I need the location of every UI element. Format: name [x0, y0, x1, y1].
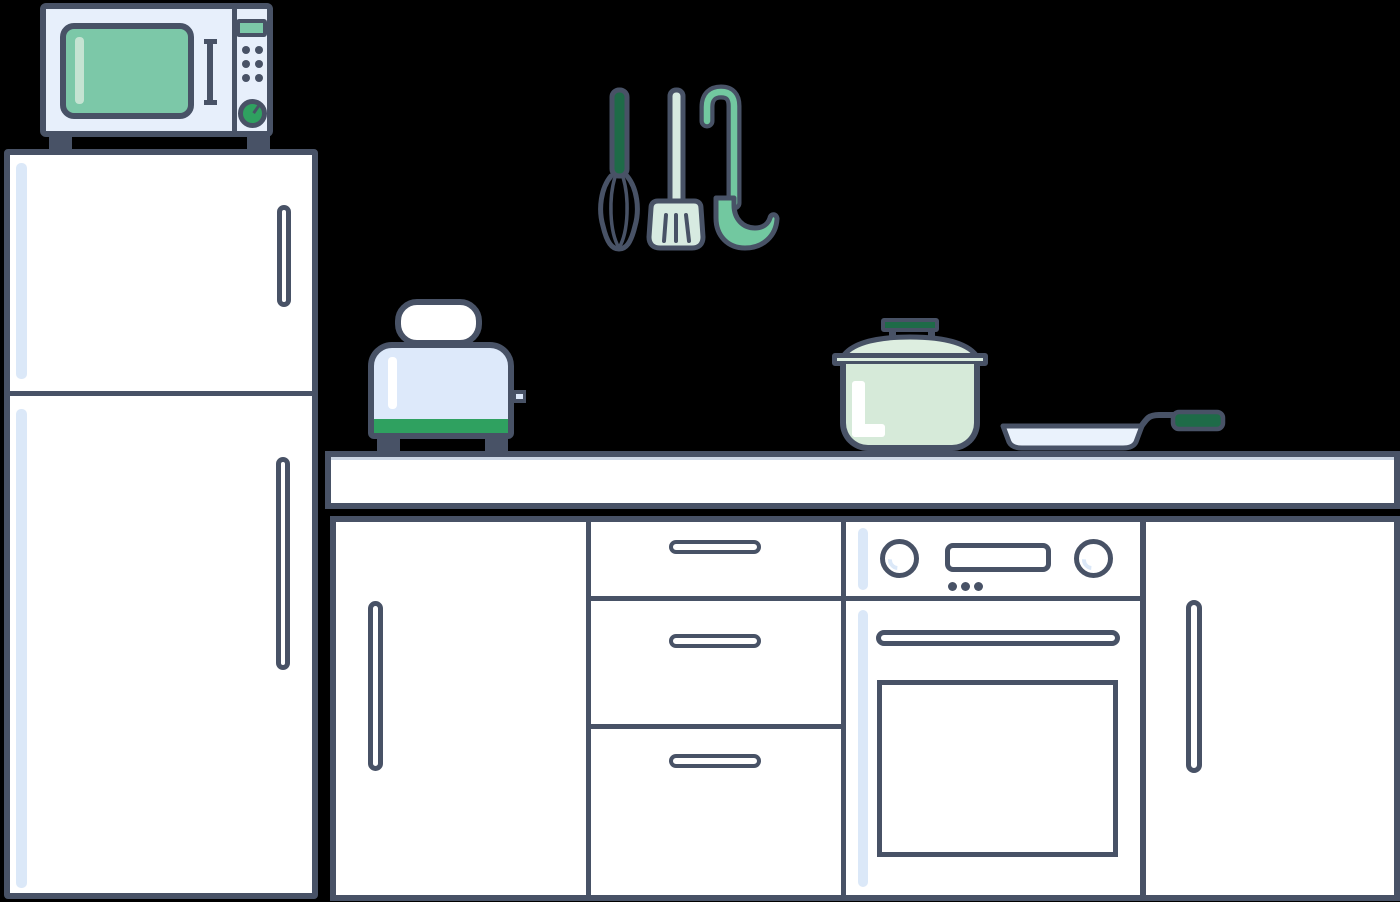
bread-slice [395, 299, 482, 346]
kitchen-illustration [0, 0, 1400, 902]
drawer-divider [586, 724, 841, 729]
microwave-dot [255, 60, 263, 68]
oven-knob-left [880, 539, 919, 578]
microwave-dot [255, 74, 263, 82]
microwave-handle-cap-top [204, 39, 217, 44]
countertop [325, 451, 1400, 509]
toaster-band [374, 419, 508, 433]
microwave-dot [255, 46, 263, 54]
drawer-handle-2 [669, 634, 761, 648]
whisk [601, 90, 638, 249]
drawer-handle-1 [669, 540, 761, 554]
microwave-dot [242, 60, 250, 68]
cabinet-divider-1 [586, 516, 591, 901]
toaster-lever-inner [516, 394, 523, 399]
drawer-oven-divider [586, 596, 1140, 601]
microwave-display [236, 19, 267, 37]
oven-panel-stripe [858, 528, 868, 590]
fridge-lower-stripe [16, 409, 27, 888]
microwave-handle-bar [207, 42, 213, 102]
oven-knob-right [1074, 539, 1113, 578]
microwave-window-highlight [75, 37, 84, 104]
spatula [649, 90, 703, 248]
fridge-body [4, 149, 318, 899]
left-door-handle [368, 601, 383, 771]
pan-dish [1003, 426, 1142, 448]
fridge-lower-handle [276, 457, 290, 670]
frying-pan [995, 405, 1230, 455]
fridge-upper-handle [277, 205, 291, 307]
ladle [707, 92, 777, 248]
oven-knob-arc [1078, 546, 1106, 574]
oven-knob-arc [884, 546, 912, 574]
pan-grip [1173, 412, 1223, 429]
fridge-door-divider [4, 391, 318, 396]
right-door-handle [1186, 600, 1202, 773]
microwave-handle-cap-bottom [204, 100, 217, 105]
pot-highlight-foot [852, 424, 885, 437]
oven-display [945, 543, 1051, 572]
drawer-handle-3 [669, 754, 761, 768]
microwave-knob [238, 99, 267, 128]
microwave-dot [242, 46, 250, 54]
cabinet-divider-3 [1140, 516, 1146, 901]
fridge-upper-stripe [16, 163, 27, 379]
oven-dot [961, 582, 970, 591]
microwave-dot [242, 74, 250, 82]
cabinet-divider-2 [841, 516, 846, 901]
oven-door-handle [876, 630, 1120, 646]
microwave-knob-tick [252, 104, 260, 114]
hanging-utensils [595, 85, 785, 255]
oven-door-stripe [858, 610, 868, 887]
oven-dot [948, 582, 957, 591]
toaster-highlight [388, 357, 397, 409]
pot-lid-knob [881, 318, 939, 332]
oven-window [877, 680, 1118, 857]
oven-dot [974, 582, 983, 591]
